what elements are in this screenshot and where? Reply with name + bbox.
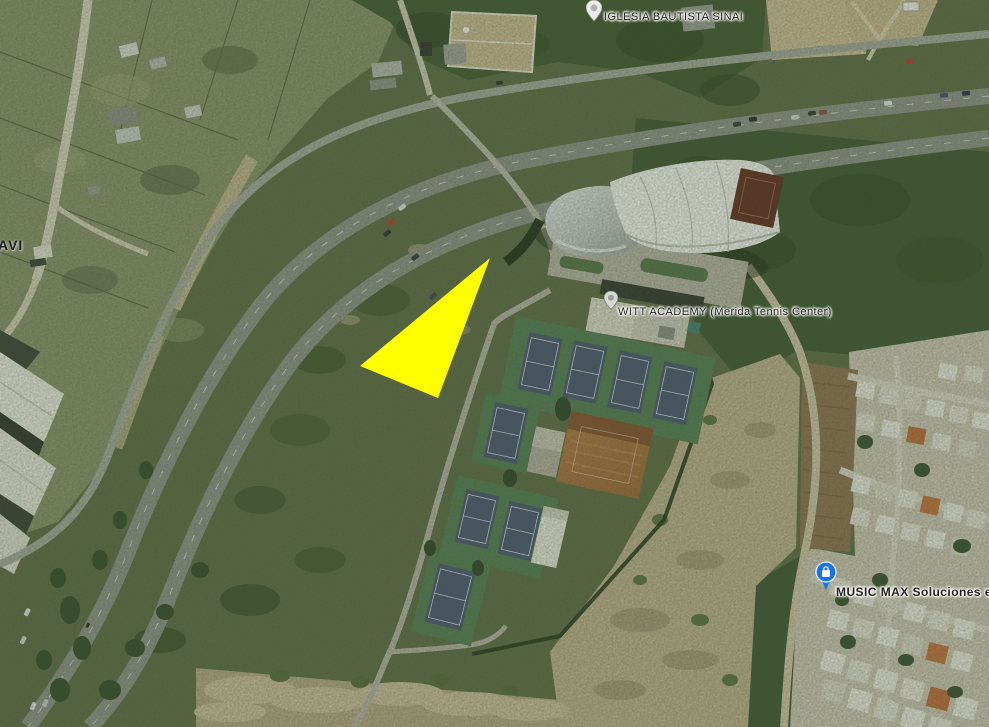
satellite-map-canvas[interactable]: IGLESIA BAUTISTA SINAI WITT ACADEMY (Mer… (0, 0, 989, 727)
street-name-partial: AVI (0, 237, 23, 253)
tennis-center-pin-icon[interactable] (604, 291, 618, 310)
satellite-imagery (0, 0, 989, 727)
church-pin-icon[interactable] (586, 0, 602, 22)
store-pin-icon[interactable] (814, 561, 838, 591)
imagery-noise-overlay (0, 0, 989, 727)
map-label-church[interactable]: IGLESIA BAUTISTA SINAI (604, 11, 743, 23)
map-label-store[interactable]: MUSIC MAX Soluciones en (836, 585, 989, 599)
map-label-tennis-center[interactable]: WITT ACADEMY (Merida Tennis Center) (618, 306, 832, 318)
